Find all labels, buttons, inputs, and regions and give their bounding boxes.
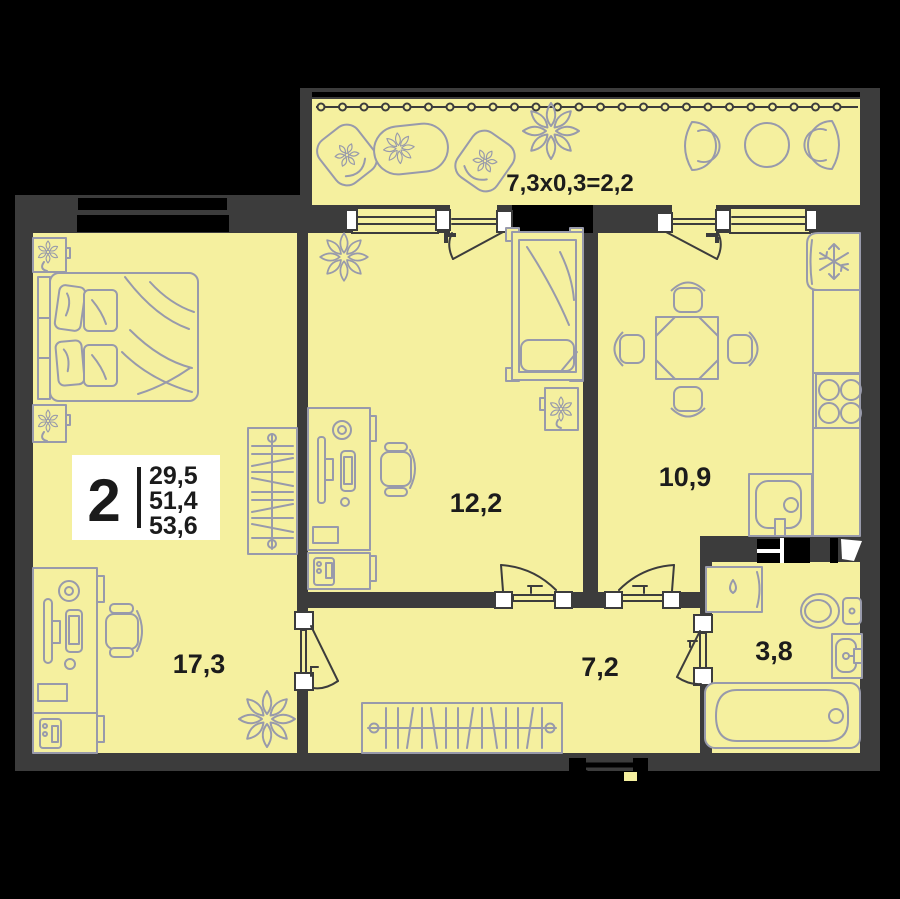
area-badge: 2 29,5 51,4 53,6	[72, 455, 220, 540]
toilet-icon	[801, 594, 861, 628]
nightstand-top	[33, 238, 70, 272]
badge-area-line-1: 29,5	[149, 462, 198, 490]
wardrobe-hallway	[362, 703, 562, 753]
floor-plan-page: 2 29,5 51,4 53,6	[0, 0, 900, 899]
badge-rooms-count: 2	[87, 467, 120, 534]
badge-area-line-2: 51,4	[149, 487, 198, 515]
wardrobe-living	[248, 428, 297, 554]
fridge-icon	[807, 233, 860, 290]
balcony-window-right	[716, 208, 817, 233]
bath-tub	[705, 683, 860, 748]
balcony-window-left	[346, 208, 450, 233]
nightstand-bedroom	[540, 388, 578, 430]
double-bed	[38, 273, 198, 401]
washing-machine-icon	[706, 567, 762, 612]
living-room-window	[77, 198, 229, 232]
desk-living	[33, 568, 104, 753]
office-chair-bedroom	[381, 443, 415, 496]
room-label-bathroom: 3,8	[755, 636, 793, 666]
room-label-kitchen: 10,9	[659, 462, 712, 492]
vent-shaft	[757, 538, 862, 563]
nightstand-bottom	[33, 405, 70, 442]
desk-bedroom	[308, 408, 376, 589]
room-label-living: 17,3	[173, 649, 226, 679]
entrance-door	[569, 758, 648, 801]
kitchen-sink	[749, 474, 812, 536]
badge-area-line-3: 53,6	[149, 512, 198, 540]
stove-icon	[816, 374, 861, 428]
room-label-hallway: 7,2	[581, 652, 619, 682]
bathroom-sink	[832, 634, 862, 678]
badge-divider	[137, 467, 141, 528]
balcony-area-formula: 7,3х0,3=2,2	[506, 170, 633, 197]
room-label-bedroom: 12,2	[450, 488, 503, 518]
floor-plan-svg: 2 29,5 51,4 53,6	[0, 0, 900, 899]
single-bed	[506, 228, 583, 381]
